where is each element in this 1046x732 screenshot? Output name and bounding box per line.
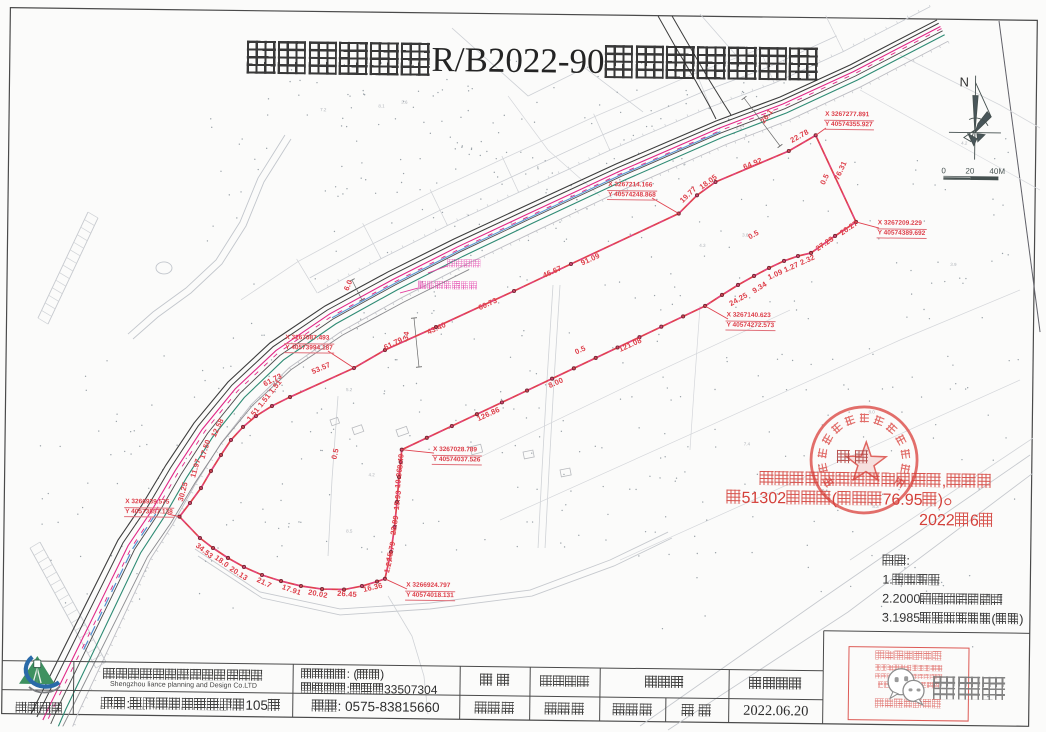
svg-text:N: N [959, 74, 969, 89]
svg-text:7.2: 7.2 [320, 107, 327, 112]
svg-text:8.5: 8.5 [346, 529, 353, 534]
svg-text:8.0: 8.0 [868, 409, 875, 414]
svg-text:3.6: 3.6 [401, 100, 408, 105]
svg-text:4.2: 4.2 [961, 141, 968, 146]
svg-text:5.2: 5.2 [346, 387, 353, 392]
svg-text:20: 20 [965, 166, 975, 175]
svg-text:4.2: 4.2 [369, 472, 376, 477]
svg-text:8.1: 8.1 [378, 104, 385, 109]
svg-text:40M: 40M [989, 167, 1005, 176]
svg-text:3.9: 3.9 [950, 262, 957, 267]
svg-text:7.4: 7.4 [744, 441, 751, 446]
svg-text:4.3: 4.3 [699, 243, 706, 248]
svg-text:0: 0 [941, 166, 946, 175]
